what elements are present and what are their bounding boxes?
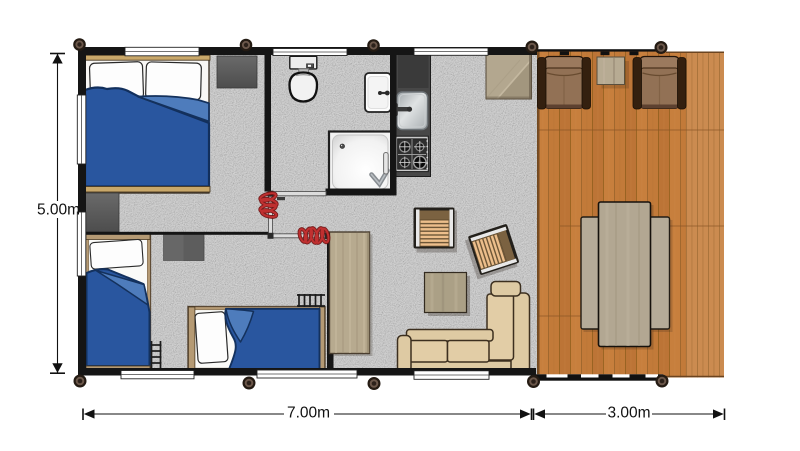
svg-text:3.00m: 3.00m [607, 405, 650, 422]
svg-text:7.00m: 7.00m [287, 405, 330, 422]
svg-text:5.00m: 5.00m [37, 202, 80, 219]
